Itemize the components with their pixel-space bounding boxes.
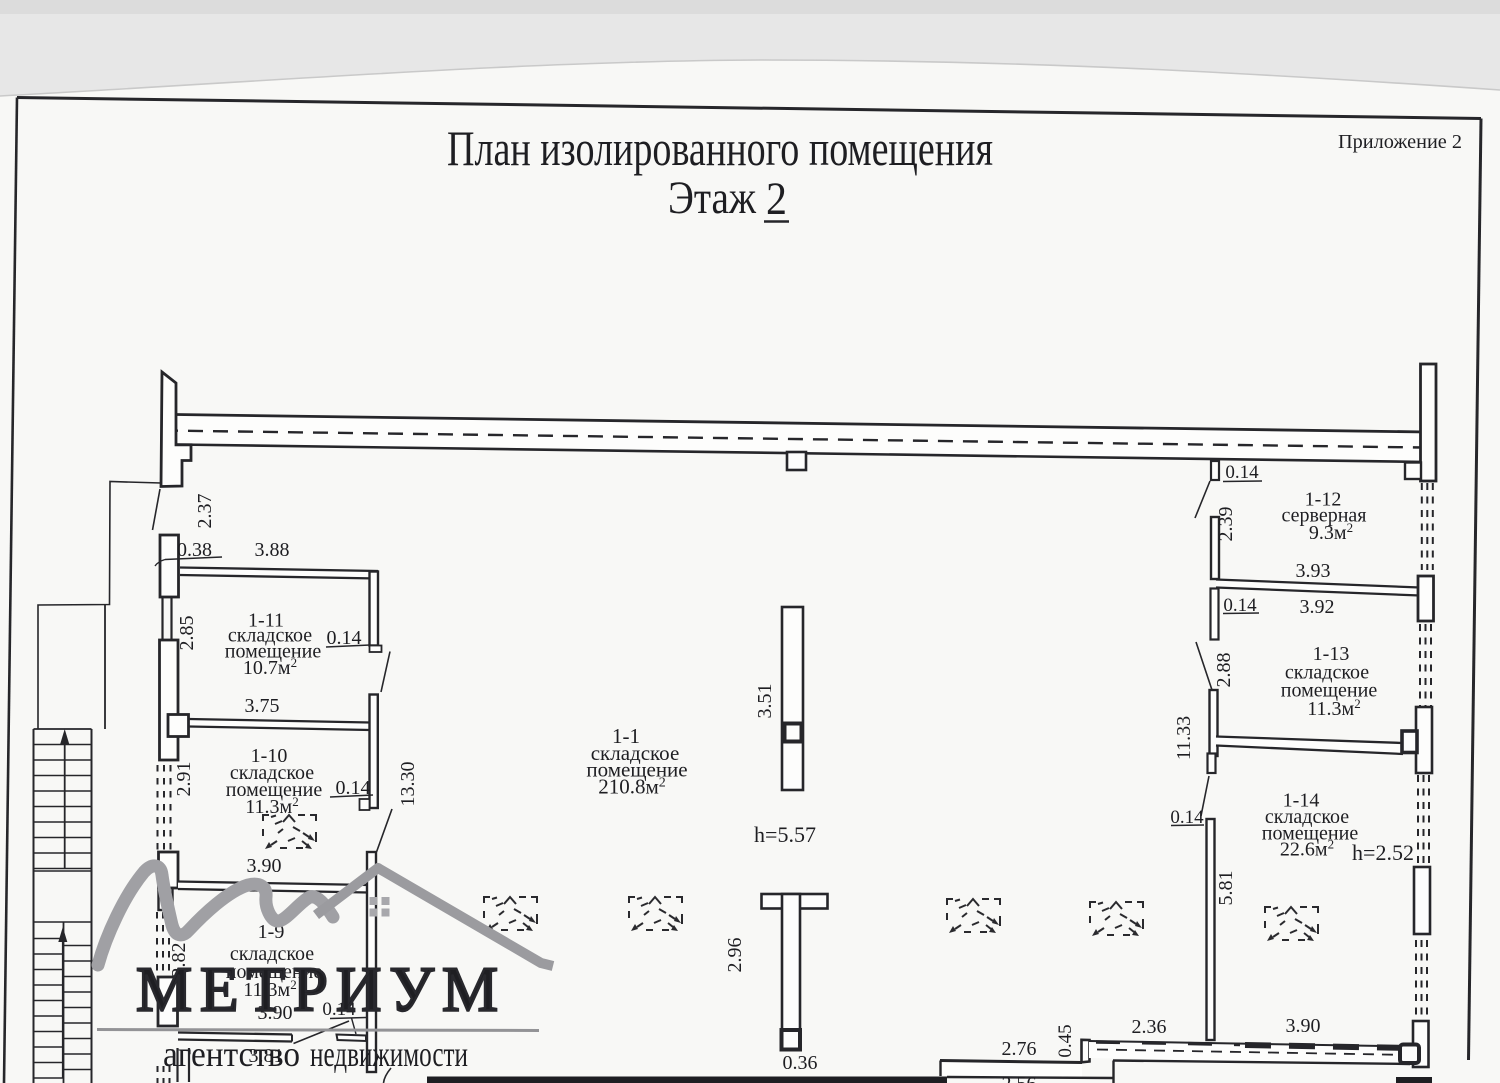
svg-text:2.85: 2.85 [176, 616, 198, 651]
svg-text:2.36: 2.36 [1132, 1016, 1167, 1038]
svg-text:3.88: 3.88 [255, 539, 290, 561]
svg-text:11.3м2: 11.3м2 [1307, 696, 1360, 720]
svg-text:h=5.57: h=5.57 [754, 822, 816, 847]
svg-text:2.91: 2.91 [173, 762, 195, 797]
svg-text:22.6м2: 22.6м2 [1280, 837, 1334, 861]
svg-text:3.93: 3.93 [1296, 560, 1331, 582]
svg-text:2.39: 2.39 [1215, 507, 1237, 542]
svg-text:2: 2 [766, 173, 787, 225]
svg-text:2.56: 2.56 [1002, 1073, 1037, 1083]
svg-text:3.92: 3.92 [1300, 596, 1335, 618]
svg-text:агентство: агентство [163, 1034, 300, 1074]
svg-text:2.37: 2.37 [194, 494, 216, 529]
svg-text:13.30: 13.30 [397, 762, 419, 807]
svg-text:11.33: 11.33 [1173, 716, 1195, 760]
svg-text:210.8м2: 210.8м2 [598, 775, 666, 799]
svg-text:9.3м2: 9.3м2 [1309, 520, 1353, 544]
svg-text:План изолированного помещения: План изолированного помещения [447, 120, 993, 176]
svg-text:11.3м2: 11.3м2 [245, 794, 298, 818]
svg-text:0.36: 0.36 [783, 1052, 818, 1074]
svg-text:3.75: 3.75 [245, 695, 280, 717]
svg-text:0.14: 0.14 [1225, 462, 1259, 483]
svg-text:2.88: 2.88 [1213, 653, 1235, 688]
svg-text:3.51: 3.51 [754, 684, 776, 719]
svg-text:3.90: 3.90 [247, 855, 282, 877]
svg-text:0.45: 0.45 [1055, 1024, 1076, 1057]
svg-text:10.7м2: 10.7м2 [243, 655, 297, 679]
svg-text:2.96: 2.96 [724, 938, 746, 973]
svg-text:3.90: 3.90 [1286, 1015, 1321, 1037]
svg-text:2.76: 2.76 [1002, 1038, 1037, 1060]
svg-text:Этаж: Этаж [668, 172, 756, 224]
svg-text:Приложение 2: Приложение 2 [1338, 131, 1462, 153]
svg-text:5.81: 5.81 [1215, 871, 1237, 906]
svg-text:недвижимости: недвижимости [310, 1034, 468, 1074]
svg-text:МЕТРИУМ: МЕТРИУМ [136, 955, 503, 1025]
svg-text:h=2.52: h=2.52 [1352, 840, 1414, 865]
